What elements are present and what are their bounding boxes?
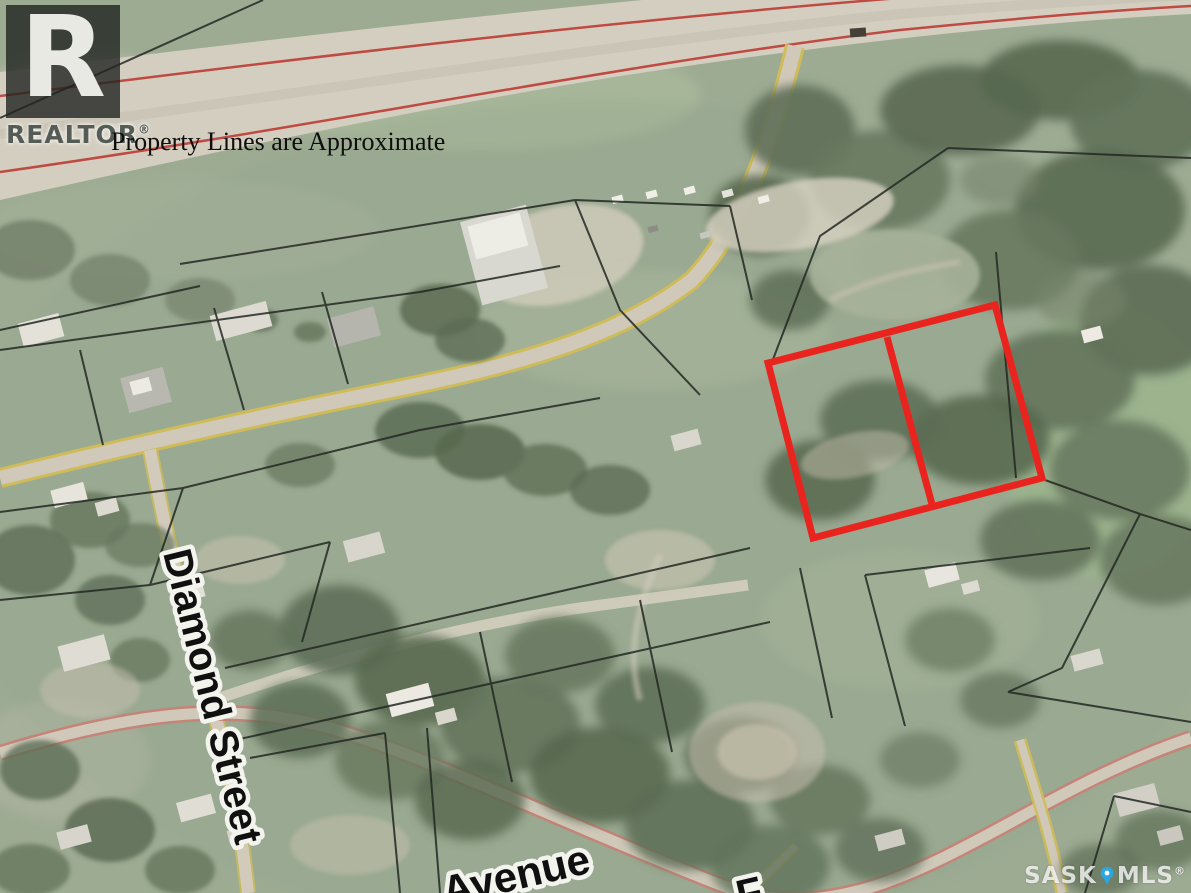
listing-map-image: Diamond Street Avenue F R REALTOR® Prope… bbox=[0, 0, 1191, 893]
realtor-logo: R bbox=[6, 5, 120, 118]
map-pin-icon bbox=[1100, 866, 1114, 886]
sask-mls-watermark: SASK MLS® bbox=[1024, 863, 1185, 889]
sask-text: SASK bbox=[1024, 863, 1097, 889]
mls-text: MLS® bbox=[1117, 863, 1185, 889]
vehicle-on-highway bbox=[850, 27, 867, 37]
realtor-logo-letter: R bbox=[20, 2, 106, 114]
disclaimer-text: Property Lines are Approximate bbox=[111, 127, 445, 157]
